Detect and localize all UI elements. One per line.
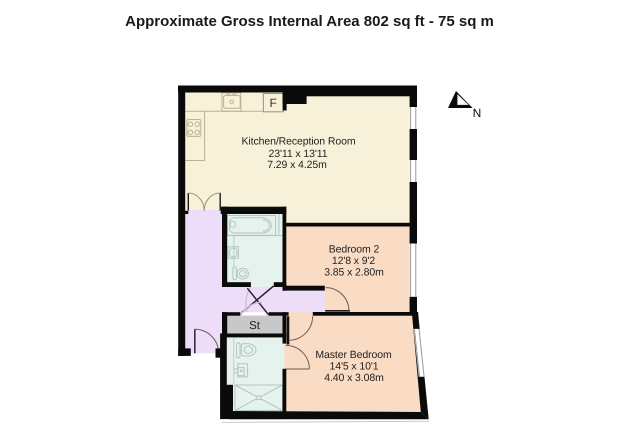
svg-text:7.29 x 4.25m: 7.29 x 4.25m	[267, 159, 327, 171]
svg-text:4.40 x 3.08m: 4.40 x 3.08m	[324, 372, 384, 384]
svg-text:N: N	[473, 106, 482, 120]
svg-text:Kitchen/Reception Room: Kitchen/Reception Room	[242, 136, 356, 148]
svg-text:St: St	[249, 320, 261, 332]
svg-text:Master Bedroom: Master Bedroom	[315, 349, 392, 361]
svg-text:14'5 x 10'1: 14'5 x 10'1	[329, 360, 378, 372]
svg-text:12'8 x 9'2: 12'8 x 9'2	[332, 255, 376, 267]
svg-text:F: F	[270, 96, 277, 110]
svg-text:23'11 x 13'11: 23'11 x 13'11	[269, 148, 328, 160]
svg-text:Bedroom 2: Bedroom 2	[329, 243, 380, 255]
svg-text:3.85 x 2.80m: 3.85 x 2.80m	[324, 267, 384, 279]
